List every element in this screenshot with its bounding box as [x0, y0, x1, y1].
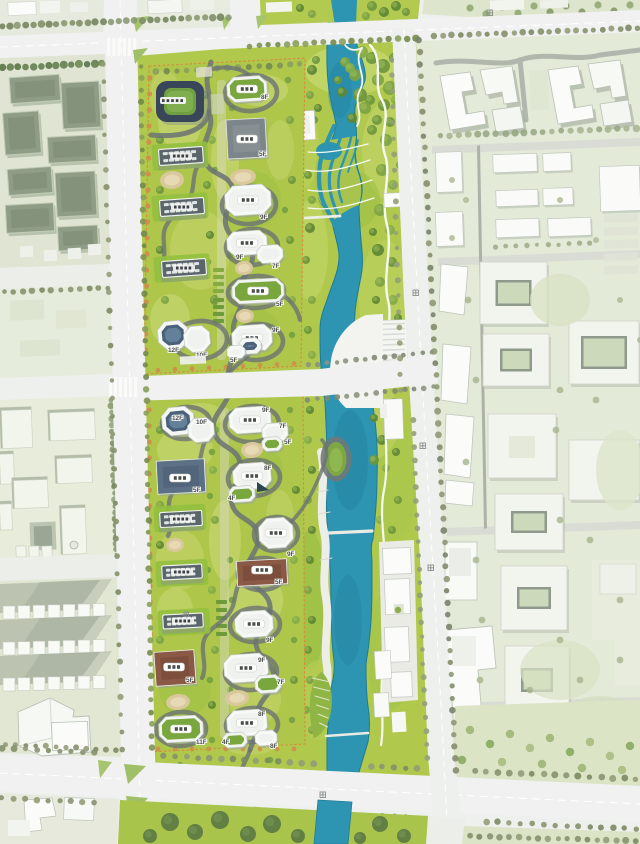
svg-text:9F: 9F: [262, 407, 270, 414]
svg-text:5F: 5F: [275, 579, 283, 586]
svg-text:9F: 9F: [258, 657, 266, 664]
svg-text:9F: 9F: [287, 551, 295, 558]
svg-text:9F: 9F: [266, 637, 274, 644]
svg-text:5F: 5F: [284, 439, 292, 446]
svg-text:9F: 9F: [272, 327, 280, 334]
svg-text:8F: 8F: [264, 465, 272, 472]
svg-text:5F: 5F: [276, 301, 284, 308]
svg-text:4F: 4F: [228, 495, 236, 502]
svg-text:9F: 9F: [236, 254, 244, 261]
svg-text:12F: 12F: [172, 415, 183, 422]
svg-text:9F: 9F: [260, 214, 268, 221]
svg-text:5F: 5F: [193, 487, 201, 494]
svg-text:7F: 7F: [272, 263, 280, 270]
svg-text:11F: 11F: [196, 739, 207, 746]
svg-text:5F: 5F: [259, 151, 267, 158]
svg-text:4F: 4F: [222, 739, 230, 746]
svg-text:5F: 5F: [230, 357, 238, 364]
svg-text:8F: 8F: [258, 711, 266, 718]
svg-text:8F: 8F: [261, 94, 269, 101]
svg-text:7F: 7F: [277, 679, 285, 686]
svg-text:10F: 10F: [196, 419, 207, 426]
svg-text:5F: 5F: [186, 677, 194, 684]
svg-text:12F: 12F: [168, 347, 179, 354]
svg-text:8F: 8F: [270, 743, 278, 750]
svg-text:7F: 7F: [279, 423, 287, 430]
